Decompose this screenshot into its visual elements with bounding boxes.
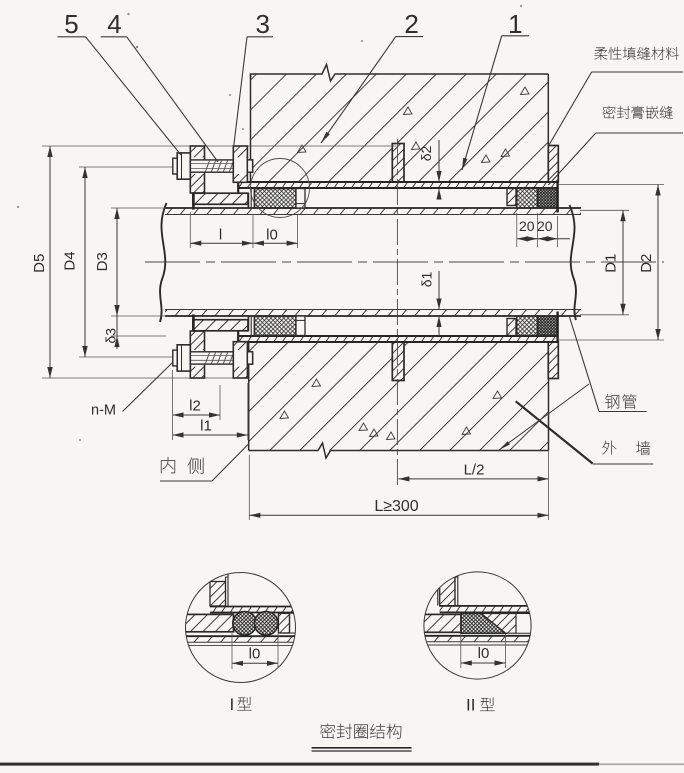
svg-text:l1: l1 (200, 418, 212, 435)
svg-text:I: I (230, 695, 235, 714)
svg-text:l: l (219, 227, 222, 244)
svg-text:D5: D5 (31, 254, 48, 273)
svg-text:D4: D4 (62, 251, 79, 270)
svg-text:20: 20 (519, 218, 535, 234)
svg-text:δ2: δ2 (418, 146, 434, 162)
svg-text:4: 4 (107, 9, 121, 39)
svg-text:2: 2 (404, 9, 418, 39)
svg-text:D2: D2 (638, 254, 655, 273)
svg-text:δ1: δ1 (419, 272, 435, 288)
svg-text:1: 1 (508, 9, 522, 39)
svg-text:l0: l0 (266, 227, 278, 244)
svg-text:20: 20 (537, 218, 553, 234)
svg-text:II: II (466, 696, 475, 715)
svg-text:l2: l2 (189, 398, 201, 415)
svg-text:l0: l0 (249, 646, 261, 663)
svg-text:D1: D1 (603, 254, 620, 273)
svg-text:L≥300: L≥300 (374, 498, 418, 515)
svg-text:5: 5 (64, 9, 78, 39)
svg-text:D3: D3 (94, 252, 111, 271)
svg-text:l0: l0 (478, 645, 490, 662)
svg-text:L/2: L/2 (464, 462, 485, 479)
svg-text:n-M: n-M (91, 403, 116, 419)
svg-text:δ3: δ3 (103, 328, 119, 344)
svg-text:3: 3 (255, 9, 269, 39)
